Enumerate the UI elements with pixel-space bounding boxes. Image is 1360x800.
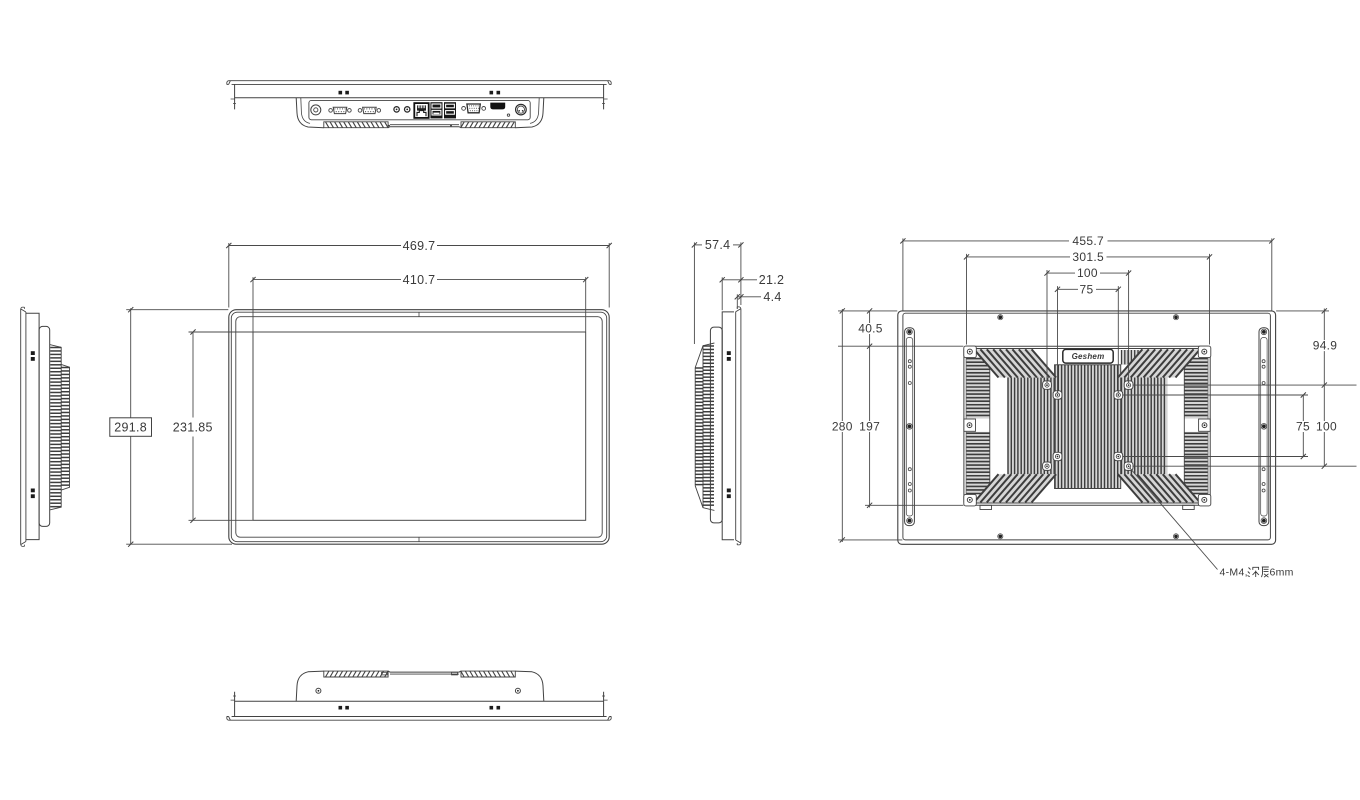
svg-text:4-M4,: 4-M4,	[1220, 567, 1248, 579]
svg-text:301.5: 301.5	[1072, 250, 1104, 264]
svg-text:197: 197	[859, 420, 880, 434]
svg-text:280: 280	[832, 420, 853, 434]
svg-text:291.8: 291.8	[114, 420, 147, 434]
svg-text:469.7: 469.7	[403, 239, 436, 253]
svg-text:100: 100	[1077, 266, 1098, 280]
svg-text:94.9: 94.9	[1313, 339, 1338, 353]
svg-text:75: 75	[1080, 282, 1094, 296]
svg-text:75: 75	[1296, 420, 1310, 434]
svg-text:100: 100	[1316, 420, 1337, 434]
svg-text:57.4: 57.4	[705, 238, 731, 252]
svg-text:455.7: 455.7	[1072, 234, 1104, 248]
svg-text:410.7: 410.7	[403, 273, 436, 287]
svg-text:6mm: 6mm	[1270, 567, 1294, 579]
svg-text:21.2: 21.2	[759, 273, 785, 287]
svg-text:Geshem: Geshem	[1072, 352, 1105, 361]
svg-text:231.85: 231.85	[173, 420, 213, 434]
svg-text:40.5: 40.5	[858, 322, 883, 336]
svg-text:4.4: 4.4	[763, 290, 781, 304]
